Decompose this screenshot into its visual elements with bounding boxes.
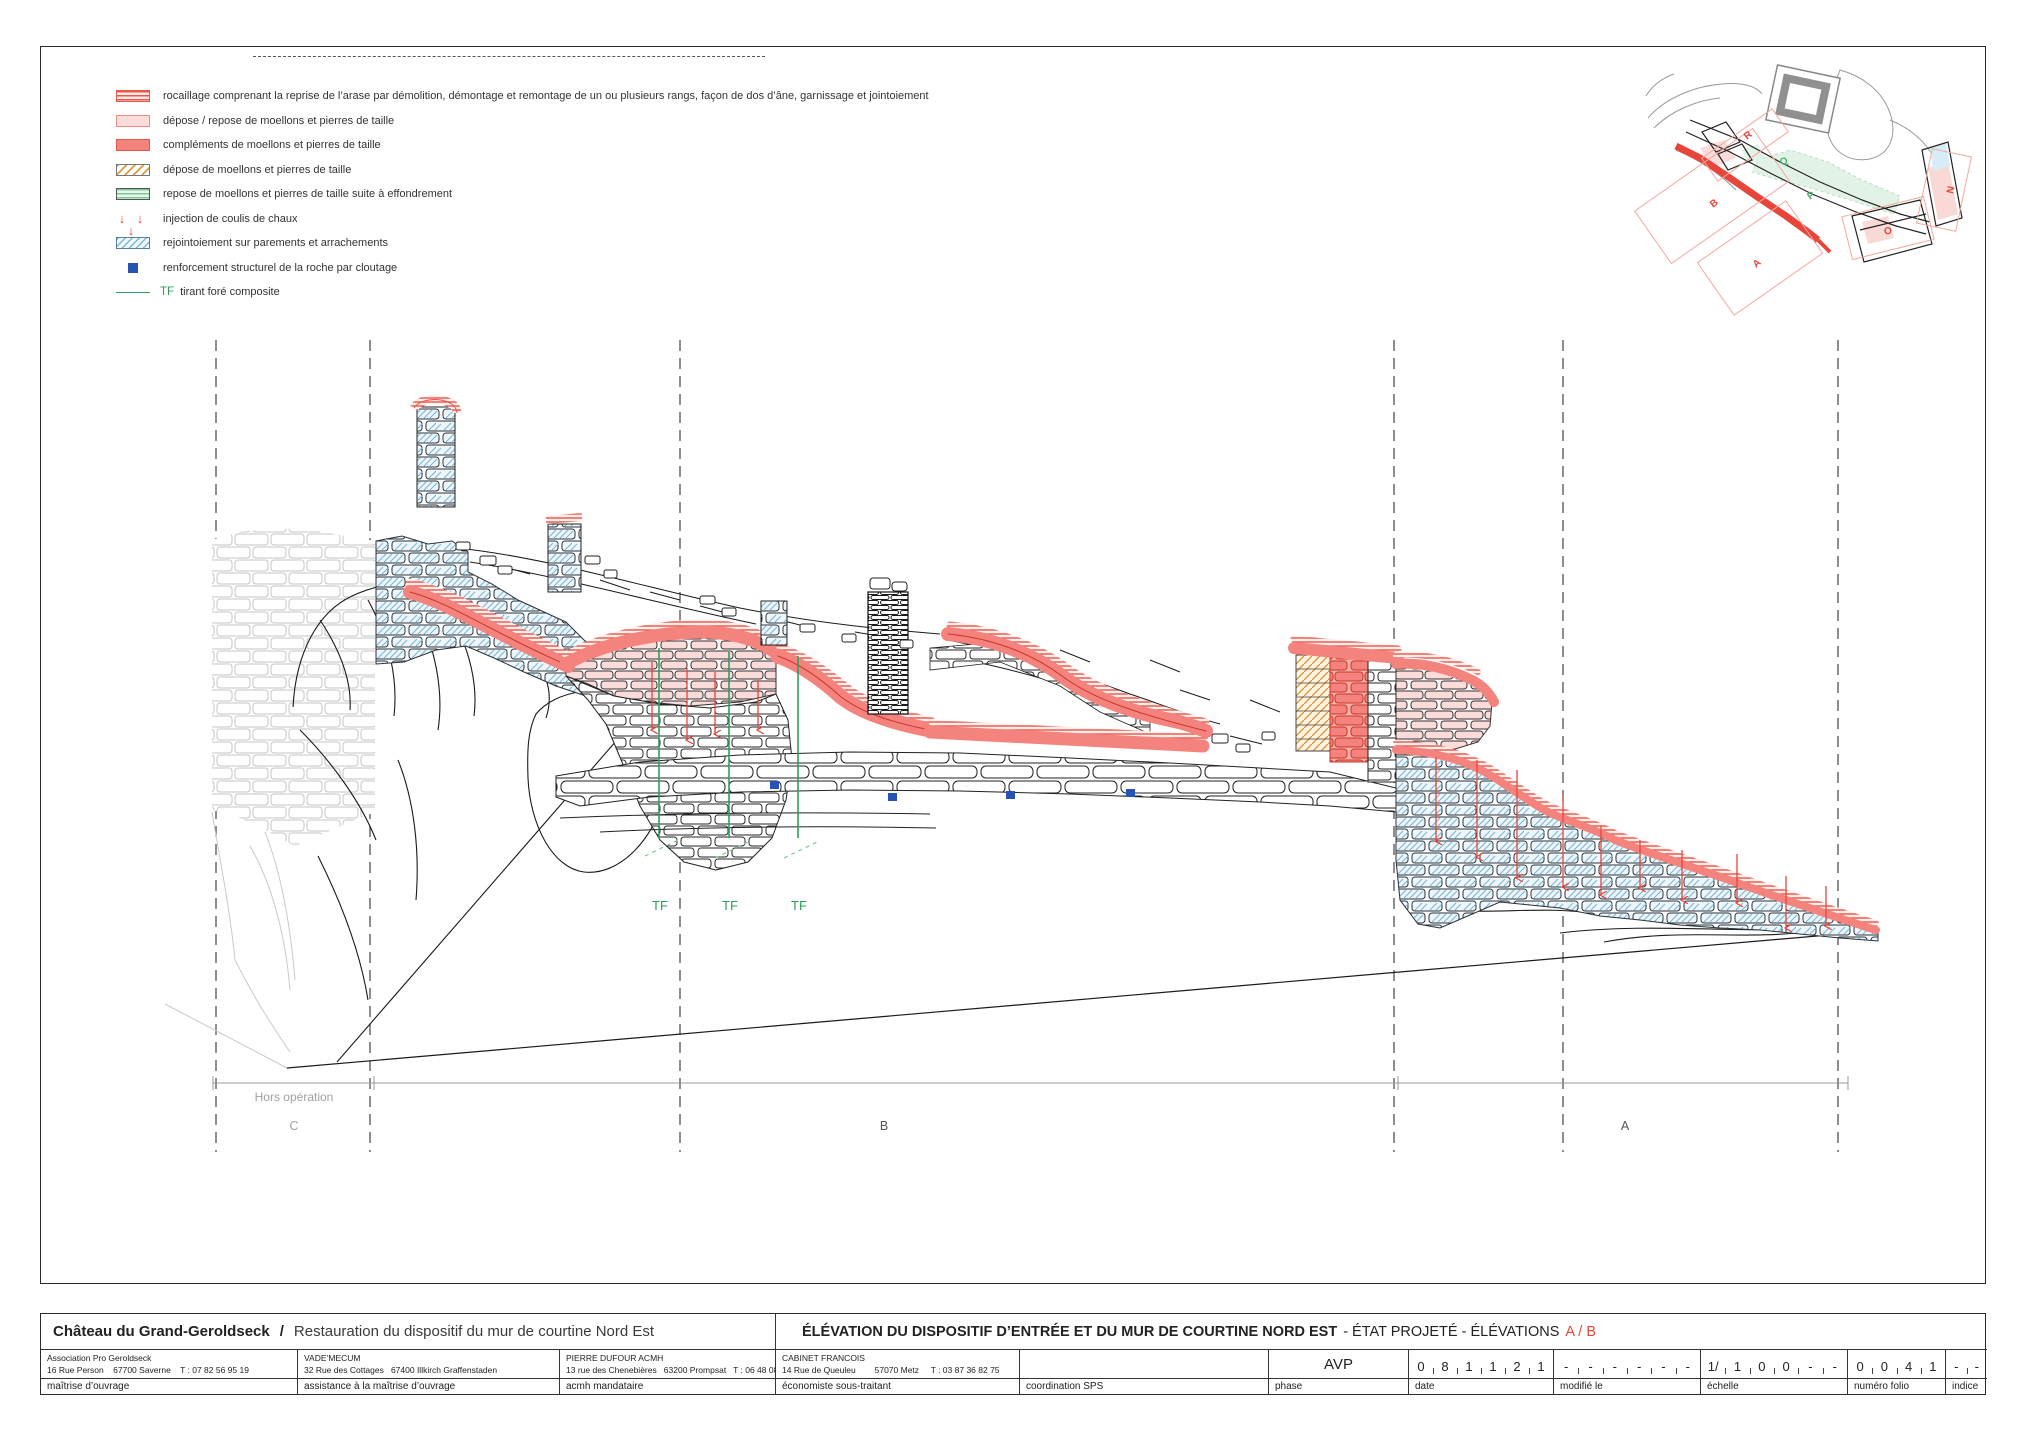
- modified-label: modifié le: [1554, 1379, 1700, 1392]
- indice-digit: -: [1967, 1359, 1988, 1375]
- title-separator: /: [280, 1323, 284, 1340]
- scale-digit: 1/: [1701, 1359, 1725, 1375]
- project-title-cell: Château du Grand-Geroldseck / Restaurati…: [41, 1314, 775, 1350]
- pillar-small: [761, 601, 787, 645]
- phase-value: AVP: [1269, 1350, 1408, 1378]
- date-digit: 1: [1457, 1359, 1481, 1375]
- tf-label: TF: [722, 898, 738, 913]
- date-digit: 1: [1481, 1359, 1505, 1375]
- phase-label: phase: [1269, 1379, 1408, 1392]
- keep-square-icon: [1766, 65, 1840, 133]
- company-address: 32 Rue des Cottages 67400 Illkirch Graff…: [298, 1363, 559, 1375]
- tf-label: TF: [652, 898, 668, 913]
- phase-label-cell: phase: [1268, 1378, 1408, 1395]
- folio-label-cell: numéro folio: [1847, 1378, 1945, 1395]
- scale-value-cell: 1/ 1 0 0 - -: [1700, 1350, 1847, 1378]
- modified-digit: -: [1651, 1359, 1675, 1375]
- drawing-title: ÉLÉVATION DU DISPOSITIF D’ENTRÉE ET DU M…: [802, 1324, 1337, 1340]
- scale-label-cell: échelle: [1700, 1378, 1847, 1395]
- role-cell: assistance à la maîtrise d’ouvrage: [297, 1378, 559, 1395]
- company-address: 14 Rue de Queuleu 57070 Metz T : 03 87 3…: [776, 1363, 1019, 1375]
- date-label: date: [1409, 1379, 1553, 1392]
- modified-digit: -: [1578, 1359, 1602, 1375]
- company-address: 16 Rue Person 67700 Saverne T : 07 82 56…: [41, 1363, 297, 1375]
- scale-digit: 1: [1725, 1359, 1749, 1375]
- role-cell: économiste sous-traitant: [775, 1378, 1019, 1395]
- folio-digit: 0: [1872, 1359, 1896, 1375]
- company-cell: VADE’MECUM 32 Rue des Cottages 67400 Ill…: [297, 1350, 559, 1378]
- role-cell: acmh mandataire: [559, 1378, 775, 1395]
- scale-digit: 0: [1774, 1359, 1798, 1375]
- scale-label: échelle: [1701, 1379, 1847, 1392]
- modified-digit: -: [1603, 1359, 1627, 1375]
- indice-digit: -: [1946, 1359, 1967, 1375]
- modified-digit: -: [1554, 1359, 1578, 1375]
- plan-label-n: N: [1945, 185, 1957, 194]
- modified-digit: -: [1676, 1359, 1700, 1375]
- tf-label: TF: [791, 898, 807, 913]
- date-digit: 0: [1409, 1359, 1433, 1375]
- company-cell: CABINET FRANCOIS 14 Rue de Queuleu 57070…: [775, 1350, 1019, 1378]
- zone-c-gray-wall: [165, 528, 375, 1068]
- title-block: Château du Grand-Geroldseck / Restaurati…: [40, 1313, 1986, 1395]
- folio-digit: 1: [1921, 1359, 1945, 1375]
- date-value-cell: 0 8 1 1 2 1: [1408, 1350, 1553, 1378]
- company-name: Association Pro Geroldseck: [41, 1350, 297, 1363]
- red-pier: [1330, 650, 1368, 762]
- date-digit: 2: [1505, 1359, 1529, 1375]
- pillar-central: [868, 592, 908, 714]
- scale-digit: -: [1823, 1359, 1847, 1375]
- company-cell-empty: [1019, 1350, 1268, 1378]
- folio-digit: 0: [1848, 1359, 1872, 1375]
- project-subtitle: Restauration du dispositif du mur de cou…: [294, 1323, 654, 1340]
- folio-value-cell: 0 0 4 1: [1847, 1350, 1945, 1378]
- ground-line: [287, 931, 1875, 1068]
- company-name: VADE’MECUM: [298, 1350, 559, 1363]
- role-label: assistance à la maîtrise d’ouvrage: [298, 1379, 559, 1392]
- date-digit: 1: [1529, 1359, 1553, 1375]
- scale-digit: 0: [1750, 1359, 1774, 1375]
- folio-digit: 4: [1897, 1359, 1921, 1375]
- section-lines: [216, 340, 1838, 1152]
- role-cell: coordination SPS: [1019, 1378, 1268, 1395]
- project-title: Château du Grand-Geroldseck: [53, 1323, 270, 1340]
- folio-label: numéro folio: [1848, 1379, 1945, 1392]
- indice-value-cell: - -: [1945, 1350, 1987, 1378]
- zone-a-label: A: [1621, 1119, 1630, 1133]
- role-label: coordination SPS: [1020, 1379, 1268, 1392]
- drawing-sheet: { "legend": { "items": [ {"swatch":"roca…: [0, 0, 2028, 1434]
- plan-label-o: O: [1883, 225, 1894, 238]
- phase-value-cell: AVP: [1268, 1350, 1408, 1378]
- plan-label-a: A: [1751, 257, 1764, 270]
- indice-label: indice: [1946, 1379, 1987, 1392]
- company-name: PIERRE DUFOUR ACMH: [560, 1350, 775, 1363]
- zone-c-label: C: [289, 1119, 298, 1133]
- modified-digit: -: [1627, 1359, 1651, 1375]
- company-address: 13 rue des Chenebières 63200 Prompsat T …: [560, 1363, 775, 1375]
- modified-label-cell: modifié le: [1553, 1378, 1700, 1395]
- white-column: [1368, 652, 1396, 782]
- role-label: maîtrise d’ouvrage: [41, 1379, 297, 1392]
- role-label: économiste sous-traitant: [776, 1379, 1019, 1392]
- plan-label-b: B: [1708, 197, 1720, 210]
- pillar-gate: [548, 524, 581, 592]
- drawing-title-elevations: A / B: [1565, 1324, 1596, 1340]
- plan-label-r: R: [1742, 129, 1755, 143]
- scale-digit: -: [1798, 1359, 1822, 1375]
- role-label: acmh mandataire: [560, 1379, 775, 1392]
- date-label-cell: date: [1408, 1378, 1553, 1395]
- drawing-title-cell: ÉLÉVATION DU DISPOSITIF D’ENTRÉE ET DU M…: [775, 1314, 1987, 1350]
- key-plan: R Q B P A O N: [1635, 65, 1972, 315]
- company-name: CABINET FRANCOIS: [776, 1350, 1019, 1363]
- company-cell: PIERRE DUFOUR ACMH 13 rue des Chenebière…: [559, 1350, 775, 1378]
- dimension-line: Hors opération C B A: [213, 1076, 1848, 1133]
- elevation-drawing: TF TF TF Hors opération C B A: [0, 0, 2028, 1434]
- pillar-left: [417, 407, 455, 507]
- zone-b-label: B: [880, 1119, 888, 1133]
- role-cell: maîtrise d’ouvrage: [41, 1378, 297, 1395]
- hors-operation-label: Hors opération: [255, 1090, 334, 1104]
- company-cell: Association Pro Geroldseck 16 Rue Person…: [41, 1350, 297, 1378]
- drawing-title-state: - ÉTAT PROJETÉ - ÉLÉVATIONS: [1343, 1324, 1559, 1340]
- indice-label-cell: indice: [1945, 1378, 1987, 1395]
- date-digit: 8: [1433, 1359, 1457, 1375]
- modified-value-cell: - - - - - -: [1553, 1350, 1700, 1378]
